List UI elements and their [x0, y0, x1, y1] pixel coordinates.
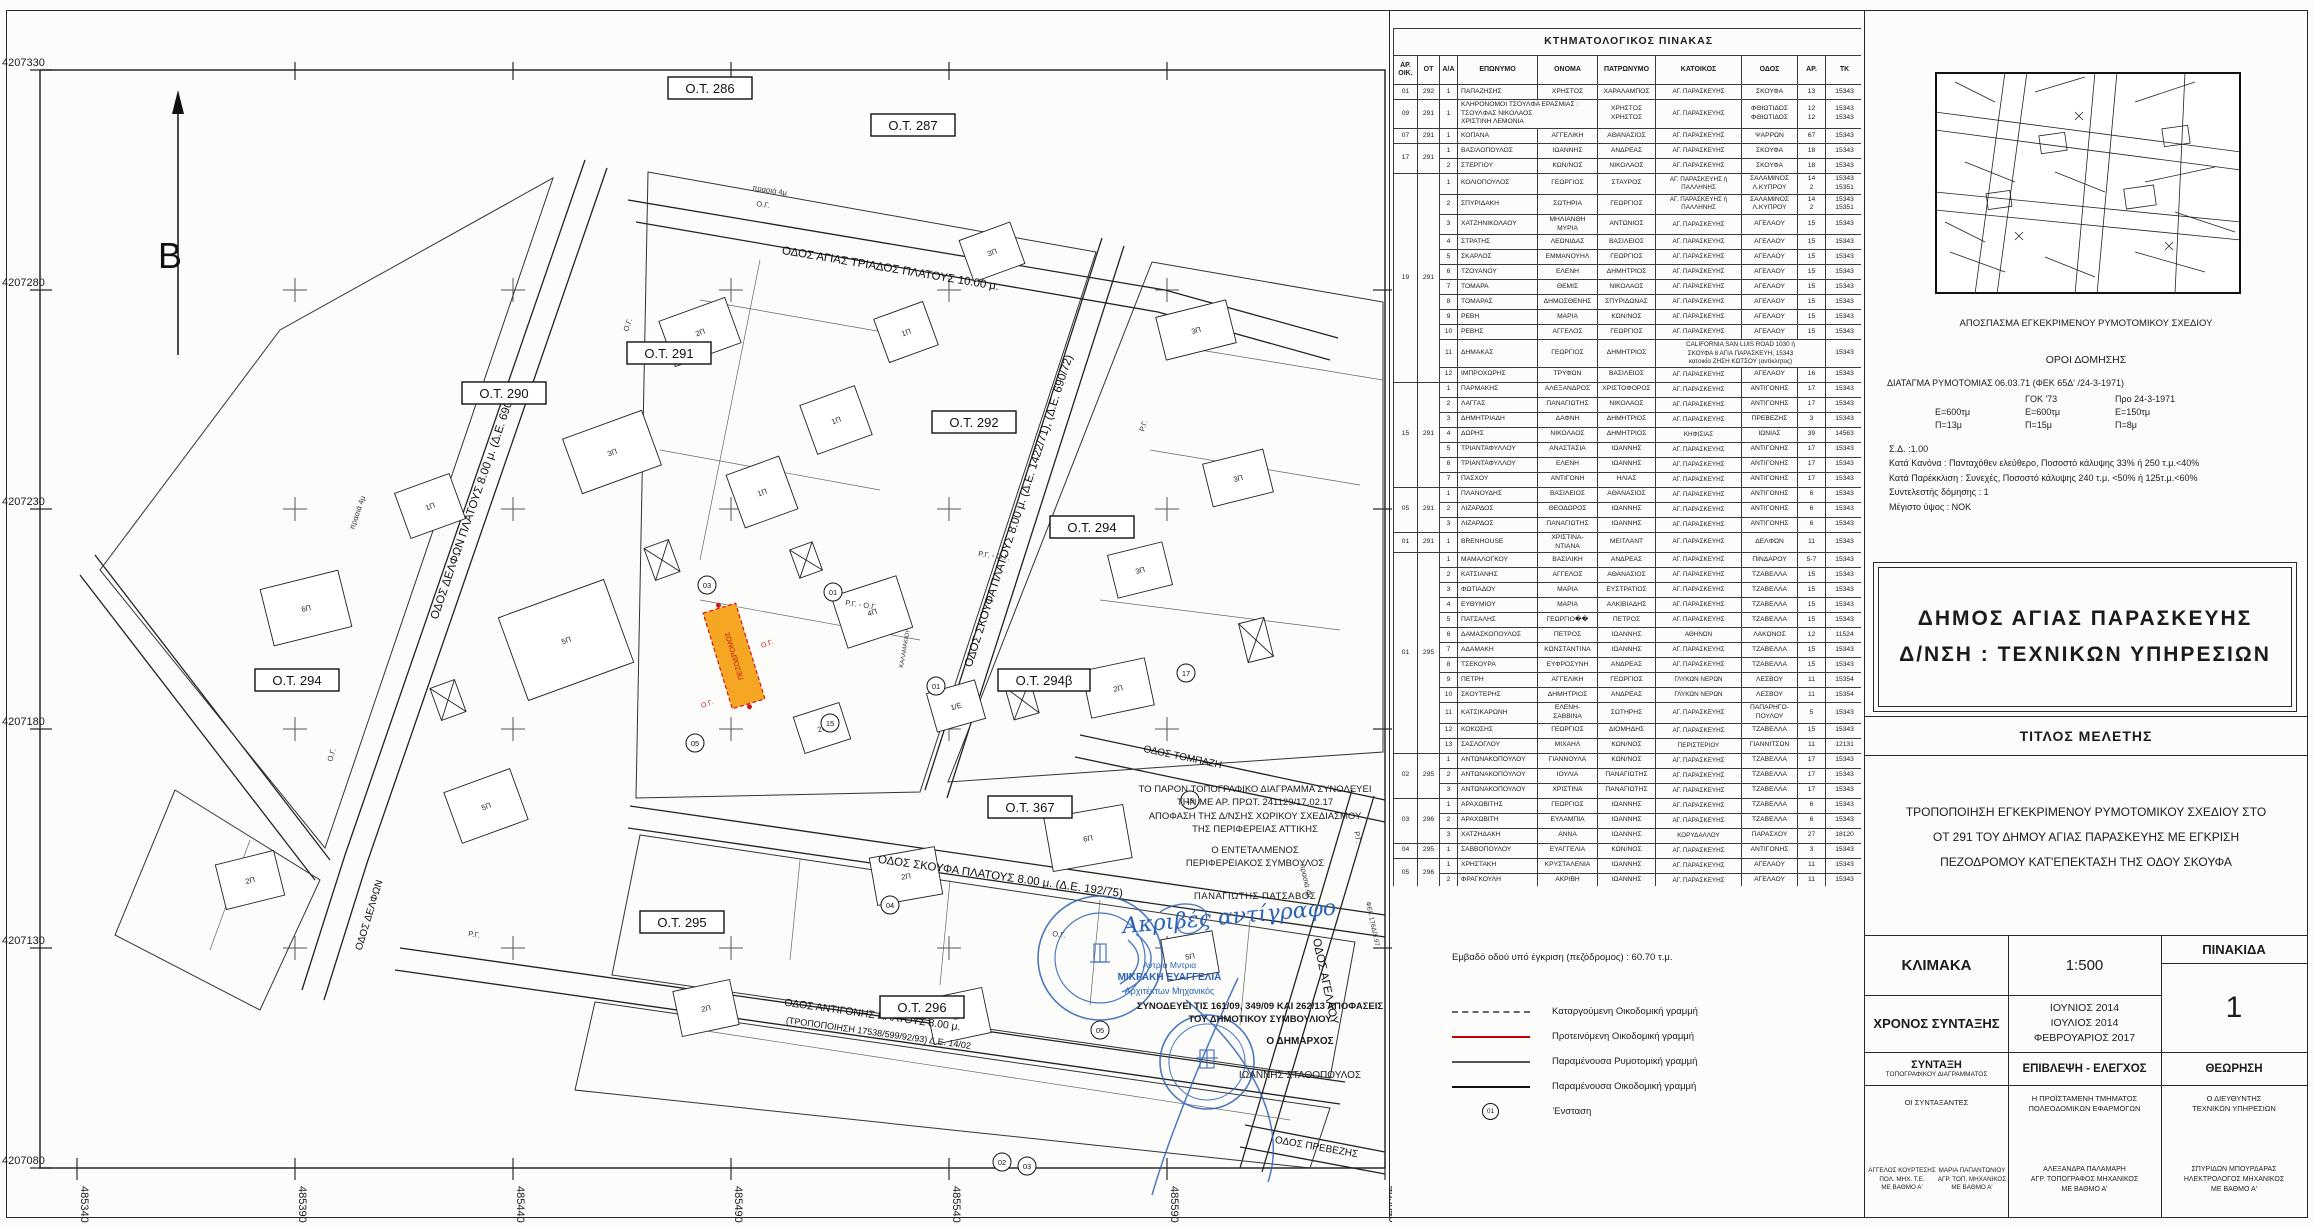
table-cell: ΑΓΕΛΑΟΥ	[1742, 265, 1798, 280]
table-cell: 291	[1418, 382, 1440, 487]
prasia-label: πρασιά 4μ	[752, 183, 788, 197]
table-cell: ΦΘΙΩΤΙΔΟΣ ΦΘΙΩΤΙΔΟΣ	[1742, 100, 1798, 129]
e-value: Ε=600τμ	[1935, 407, 2025, 417]
table-cell: 7	[1440, 643, 1458, 658]
table-row: 3ΧΑΤΖΗΝΙΚΟΛΑΟΥΜΗΛΙΑΝΘΗ ΜΥΡΙΑΑΝΤΩΝΙΟΣΑΓ. …	[1394, 214, 1862, 234]
table-row: 5ΠΑΤΣΑΛΗΣΓΕΩΡΓΙΟ��ΠΕΤΡΟΣΑΓ. ΠΑΡΑΣΚΕΥΗΣΤΖ…	[1394, 613, 1862, 628]
table-cell: ΑΓ. ΠΑΡΑΣΚΕΥΗΣ	[1656, 442, 1742, 457]
table-cell: ΑΓ. ΠΑΡΑΣΚΕΥΗΣ	[1656, 397, 1742, 412]
table-cell: ΑΓ. ΠΑΡΑΣΚΕΥΗΣ	[1656, 250, 1742, 265]
decree-line: ΔΙΑΤΑΓΜΑ ΡΥΜΟΤΟΜΙΑΣ 06.03.71 (ΦΕΚ 65Δ' /…	[1887, 378, 2297, 388]
cadastral-table: ΚΤΗΜΑΤΟΛΟΓΙΚΟΣ ΠΙΝΑΚΑΣ ΑΡ. ΟΙΚ. ΟΤ Α/Α Ε…	[1393, 28, 1861, 886]
table-cell: ΙΩΑΝΝΗΣ	[1598, 828, 1656, 843]
table-cell: ΛΙΖΑΡΔΟΣ	[1458, 502, 1538, 517]
table-row: 10ΡΕΒΗΣΑΓΓΕΛΟΣΓΕΩΡΓΙΟΣΑΓ. ΠΑΡΑΣΚΕΥΗΣΑΓΕΛ…	[1394, 325, 1862, 340]
table-cell: 4	[1440, 235, 1458, 250]
supervisor-role: Η ΠΡΟΪΣΤΑΜΕΝΗ ΤΜΗΜΑΤΟΣ ΠΟΛΕΟΔΟΜΙΚΩΝ ΕΦΑΡ…	[2008, 1090, 2161, 1118]
table-row: 012951ΜΑΜΑΛΟΓΚΟΥΒΑΣΙΛΙΚΗΑΝΔΡΕΑΣΑΓ. ΠΑΡΑΣ…	[1394, 553, 1862, 568]
table-cell: 6	[1798, 502, 1826, 517]
p-value: Π=15μ	[2025, 420, 2115, 430]
table-cell: ΑΓ. ΠΑΡΑΣΚΕΥΗΣ	[1656, 100, 1742, 129]
table-cell: 15	[1798, 310, 1826, 325]
table-cell: ΔΑΦΝΗ	[1538, 412, 1598, 427]
engineer-name-4: ΣΠΥΡΙΔΩΝ ΜΠΟΥΡΔΑΡΑΣ ΗΛΕΚΤΡΟΛΟΓΟΣ ΜΗΧΑΝΙΚ…	[2161, 1155, 2307, 1205]
col-header: ΟΤ	[1418, 56, 1440, 85]
table-cell: 5	[1440, 250, 1458, 265]
table-cell: ΓΛΥΚΩΝ ΝΕΡΩΝ	[1656, 688, 1742, 703]
table-cell: ΔΕΛΦΩΝ	[1742, 532, 1798, 552]
e-value: Ε=600τμ	[2025, 407, 2115, 417]
table-cell: 12	[1440, 367, 1458, 382]
table-cell: ΠΑΝΑΓΙΩΤΗΣ	[1538, 517, 1598, 532]
table-cell: 15343	[1826, 783, 1862, 798]
table-cell: ΑΛΚΙΒΙΑΔΗΣ	[1598, 598, 1656, 613]
municipality-box: ΔΗΜΟΣ ΑΓΙΑΣ ΠΑΡΑΣΚΕΥΗΣ Δ/ΝΣΗ : ΤΕΧΝΙΚΩΝ …	[1873, 562, 2297, 712]
objection-number: 05	[1096, 1026, 1104, 1035]
table-cell: 10	[1440, 688, 1458, 703]
compile-title: ΣΥΝΤΑΞΗ	[1911, 1059, 1962, 1071]
table-cell: ΣΠΥΡΙΔΩΝΑΣ	[1598, 295, 1656, 310]
table-cell: ΑΓ. ΠΑΡΑΣΚΕΥΗΣ	[1656, 85, 1742, 100]
table-cell: 1	[1440, 753, 1458, 768]
table-row: 12ΚΟΚΟΣΗΣΓΕΩΡΓΙΟΣΔΙΟΜΗΔΗΣΑΓ. ΠΑΡΑΣΚΕΥΗΣΤ…	[1394, 723, 1862, 738]
exception-line: Κατά Παρέκκλιση : Συνεχές, Ποσοστό κάλυψ…	[1889, 471, 2299, 485]
table-cell: 11	[1798, 873, 1826, 886]
table-cell: 15	[1798, 598, 1826, 613]
table-cell: 27	[1798, 828, 1826, 843]
table-cell: ΚΩΝ/ΝΟΣ	[1598, 843, 1656, 858]
table-cell: 10	[1440, 325, 1458, 340]
table-cell: ΑΓΕΛΑΟΥ	[1742, 214, 1798, 234]
table-row: 9ΠΕΤΡΗΑΓΓΕΛΙΚΗΓΕΩΡΓΙΟΣΓΛΥΚΩΝ ΝΕΡΩΝΛΕΣΒΟΥ…	[1394, 673, 1862, 688]
table-cell: 2	[1440, 502, 1458, 517]
table-cell: 15343	[1826, 753, 1862, 768]
table-cell: ΤΟΜΑΡΑ	[1458, 280, 1538, 295]
x-tick-label: 485390	[296, 1186, 308, 1223]
table-cell: ΑΓ. ΠΑΡΑΣΚΕΥΗΣ	[1656, 517, 1742, 532]
table-cell: ΒΑΣΙΛΕΙΟΣ	[1598, 235, 1656, 250]
table-cell: ΛΕΩΝΙΔΑΣ	[1538, 235, 1598, 250]
objection-number: 01	[932, 682, 940, 691]
col-header: ΠΑΤΡΩΝΥΜΟ	[1598, 56, 1656, 85]
table-cell: 6	[1440, 628, 1458, 643]
table-cell: 1	[1440, 129, 1458, 144]
table-cell: ΓΕΩΡΓΙΟΣ	[1538, 723, 1598, 738]
table-cell: CALIFORNIA SAN LUIS ROAD 1030 ή ΣΚΟΥΦΑ 8…	[1656, 340, 1826, 368]
table-cell: 01	[1394, 532, 1418, 552]
table-cell: 8	[1440, 658, 1458, 673]
table-row: 3ΑΝΤΩΝΑΚΟΠΟΥΛΟΥΧΡΙΣΤΙΝΑΠΑΝΑΓΙΩΤΗΣΑΓ. ΠΑΡ…	[1394, 783, 1862, 798]
table-cell: ΣΠΥΡΙΔΑΚΗ	[1458, 194, 1538, 214]
north-label: Β	[158, 235, 182, 276]
table-cell: ΜΑΡΙΑ	[1538, 598, 1598, 613]
table-cell: ΓΙΑΝΝΟΥΛΑ	[1538, 753, 1598, 768]
table-row: 4ΔΩΡΗΣΝΙΚΟΛΑΟΣΔΗΜΗΤΡΙΟΣΚΗΦΙΣΙΑΣΙΩΝΙΑΣ391…	[1394, 427, 1862, 442]
table-cell: ΚΩΝΣΤΑΝΤΙΝΑ	[1538, 643, 1598, 658]
table-cell: 15343	[1826, 768, 1862, 783]
table-cell: 8	[1440, 295, 1458, 310]
y-tick-label: 4207230	[2, 496, 45, 508]
terms-blank	[1935, 394, 2025, 404]
table-cell: 09	[1394, 100, 1418, 129]
architect-hand-note: Αντρια Μντρια	[1082, 960, 1257, 970]
table-cell: 17	[1798, 472, 1826, 487]
table-cell: ΣΤΕΡΓΙΟΥ	[1458, 159, 1538, 174]
table-cell: ΣΑΛΑΜΙΝΟΣ Λ.ΚΥΠΡΟΥ	[1742, 174, 1798, 194]
table-cell: 15	[1798, 658, 1826, 673]
table-cell: 15343	[1826, 325, 1862, 340]
table-cell: 295	[1418, 843, 1440, 858]
table-row: 3ΔΗΜΗΤΡΙΑΔΗΔΑΦΝΗΔΗΜΗΤΡΙΟΣΑΓ. ΠΑΡΑΣΚΕΥΗΣΠ…	[1394, 412, 1862, 427]
table-cell: ΜΑΡΙΑ	[1538, 583, 1598, 598]
table-cell: 2	[1440, 397, 1458, 412]
table-cell: 15343	[1826, 250, 1862, 265]
objection-number: 04	[886, 901, 894, 910]
table-cell: ΡΕΒΗΣ	[1458, 325, 1538, 340]
mayor-title: Ο ΔΗΜΑΡΧΟΣ	[1215, 1036, 1385, 1047]
table-cell: ΙΩΑΝΝΗΣ	[1598, 798, 1656, 813]
table-cell: 1	[1440, 858, 1458, 873]
table-cell: ΑΓΕΛΑΟΥ	[1742, 250, 1798, 265]
table-cell: 296	[1418, 858, 1440, 886]
table-cell: ΑΓ. ΠΑΡΑΣΚΕΥΗΣ	[1656, 613, 1742, 628]
table-cell: 15	[1394, 382, 1418, 487]
table-cell: 15343	[1826, 517, 1862, 532]
table-cell: ΠΑΡΑΣΧΟΥ	[1742, 828, 1798, 843]
table-cell: ΓΕΩΡΓΙΟ��	[1538, 613, 1598, 628]
table-cell: 1	[1440, 487, 1458, 502]
table-cell: ΧΡΙΣΤΙΝΑ	[1538, 783, 1598, 798]
table-cell: 15343	[1826, 613, 1862, 628]
table-cell: ΠΑΠΑΡΗΓΟ- ΠΟΥΛΟΥ	[1742, 703, 1798, 723]
table-cell: 3	[1440, 583, 1458, 598]
table-cell: ΧΡΗΣΤΑΚΗ	[1458, 858, 1538, 873]
table-cell: 17	[1798, 457, 1826, 472]
legend-item: Προτεινόμενη Οικοδομική γραμμή	[1452, 1024, 1852, 1049]
date-label: ΧΡΟΝΟΣ ΣΥΝΤΑΞΗΣ	[1865, 995, 2008, 1052]
table-cell: 15343	[1826, 798, 1862, 813]
table-cell: ΓΕΩΡΓΙΟΣ	[1538, 798, 1598, 813]
table-row: 022951ΑΝΤΩΝΑΚΟΠΟΥΛΟΥΓΙΑΝΝΟΥΛΑΚΩΝ/ΝΟΣΑΓ. …	[1394, 753, 1862, 768]
table-cell: ΑΓΓΕΛΟΣ	[1538, 568, 1598, 583]
table-cell: 67	[1798, 129, 1826, 144]
table-cell: ΣΑΛΑΜΙΝΟΣ Λ.ΚΥΠΡΟΥ	[1742, 194, 1798, 214]
table-cell: 12 12	[1798, 100, 1826, 129]
table-cell: ΑΓ. ΠΑΡΑΣΚΕΥΗΣ	[1656, 367, 1742, 382]
table-cell: 3	[1440, 214, 1458, 234]
col-header: ΟΝΟΜΑ	[1538, 56, 1598, 85]
table-cell: ΤΡΙΑΝΤΑΦΥΛΛΟΥ	[1458, 457, 1538, 472]
table-cell: ΑΓ. ΠΑΡΑΣΚΕΥΗΣ	[1656, 583, 1742, 598]
table-cell: ΑΓ. ΠΑΡΑΣΚΕΥΗΣ	[1656, 310, 1742, 325]
objection-number: 02	[998, 1158, 1006, 1167]
table-cell: ΤΟΜΑΡΑΣ	[1458, 295, 1538, 310]
table-cell: 3	[1440, 517, 1458, 532]
dates: ΙΟΥΝΙΟΣ 2014 ΙΟΥΛΙΟΣ 2014 ΦΕΒΡΟΥΑΡΙΟΣ 20…	[2008, 995, 2161, 1052]
table-cell: ΑΝΔΡΕΑΣ	[1598, 658, 1656, 673]
engineer-name-1: ΑΓΓΕΛΟΣ ΚΟΥΡΤΕΣΗΣ ΠΟΛ. ΜΗΧ. Τ.Ε. ΜΕ ΒΑΘΜ…	[1867, 1155, 1937, 1205]
table-cell: ΑΝΤΙΓΟΝΗΣ	[1742, 397, 1798, 412]
table-row: 11ΔΗΜΑΚΑΣΓΕΩΡΓΙΟΣΔΗΜΗΤΡΙΟΣCALIFORNIA SAN…	[1394, 340, 1862, 368]
table-cell: ΤΖΑΒΕΛΛΑ	[1742, 583, 1798, 598]
table-cell: 1	[1440, 798, 1458, 813]
table-cell: ΑΓ. ΠΑΡΑΣΚΕΥΗΣ	[1656, 753, 1742, 768]
table-cell: ΤΖΑΒΕΛΛΑ	[1742, 598, 1798, 613]
p-value: Π=8μ	[2115, 420, 2225, 430]
table-cell: 17	[1798, 442, 1826, 457]
table-cell: ΔΗΜΗΤΡΙΟΣ	[1598, 427, 1656, 442]
table-cell: ΕΛΕΝΗ	[1538, 457, 1598, 472]
y-tick-label: 4207180	[2, 716, 45, 728]
table-cell: ΑΝΔΡΕΑΣ	[1598, 688, 1656, 703]
table-row: 4ΣΤΡΑΤΗΣΛΕΩΝΙΔΑΣΒΑΣΙΛΕΙΟΣΑΓ. ΠΑΡΑΣΚΕΥΗΣΑ…	[1394, 235, 1862, 250]
table-cell: ΠΕΡΙΣΤΕΡΙΟΥ	[1656, 738, 1742, 753]
table-row: 2ΛΙΖΑΡΔΟΣΘΕΟΔΩΡΟΣΙΩΑΝΝΗΣΑΓ. ΠΑΡΑΣΚΕΥΗΣΑΝ…	[1394, 502, 1862, 517]
table-cell: ΑΡΑΧΩΒΙΤΗΣ	[1458, 798, 1538, 813]
table-cell: ΣΚΟΥΦΑ	[1742, 144, 1798, 159]
table-row: 192911ΚΟΛΙΟΠΟΥΛΟΣΓΕΩΡΓΙΟΣΣΤΑΥΡΟΣΑΓ. ΠΑΡΑ…	[1394, 174, 1862, 194]
table-cell: ΧΡΙΣΤΙΝΑ-ΝΤΙΑΝΑ	[1538, 532, 1598, 552]
table-cell: ΛΑΓΓΑΣ	[1458, 397, 1538, 412]
table-cell: ΔΙΟΜΗΔΗΣ	[1598, 723, 1656, 738]
coefficient-line: Συντελεστής δόμησης : 1	[1889, 485, 2299, 499]
table-cell: ΑΓ. ΠΑΡΑΣΚΕΥΗΣ	[1656, 457, 1742, 472]
table-cell: 15	[1798, 723, 1826, 738]
table-row: 052911ΠΛΑΝΟΥΔΗΣΒΑΣΙΛΕΙΟΣΑΘΑΝΑΣΙΟΣΑΓ. ΠΑΡ…	[1394, 487, 1862, 502]
table-cell: 01	[1394, 85, 1418, 100]
council-decisions-note: ΣΥΝΟΔΕΥΕΙ ΤΙΣ 161/09, 349/09 ΚΑΙ 262/13 …	[1110, 1000, 1410, 1027]
table-cell: 291	[1418, 174, 1440, 383]
og-label-red: Ο.Γ.	[700, 699, 714, 710]
table-cell: ΙΩΑΝΝΗΣ	[1598, 643, 1656, 658]
table-cell: ΜΕΙΤΛΑΝΤ	[1598, 532, 1656, 552]
table-cell: ΑΓ. ΠΑΡΑΣΚΕΥΗΣ	[1656, 159, 1742, 174]
table-row: 2ΑΡΑΧΩΒΙΤΗΕΥΛΑΜΠΙΑΙΩΑΝΝΗΣΑΓ. ΠΑΡΑΣΚΕΥΗΣΤ…	[1394, 813, 1862, 828]
block-label: Ο.Τ. 367	[1005, 800, 1054, 815]
table-cell: 15343	[1826, 532, 1862, 552]
table-cell: ΒΑΣΙΛΙΚΗ	[1538, 553, 1598, 568]
table-cell: ΑΝΤΩΝΑΚΟΠΟΥΛΟΥ	[1458, 783, 1538, 798]
table-cell: ΛΕΣΒΟΥ	[1742, 688, 1798, 703]
table-cell: ΑΝΤΙΓΟΝΗΣ	[1742, 487, 1798, 502]
table-cell: ΑΝΤΙΓΟΝΗΣ	[1742, 442, 1798, 457]
table-cell: ΣΤΡΑΤΗΣ	[1458, 235, 1538, 250]
table-cell: 15343	[1826, 340, 1862, 368]
table-cell: 15343	[1826, 553, 1862, 568]
og-label-red: Ο.Γ.	[760, 639, 774, 650]
table-cell: ΓΙΑΝΝΙΤΣΩΝ	[1742, 738, 1798, 753]
table-cell: 15343	[1826, 159, 1862, 174]
table-cell: ΚΑΤΣΙΚΑΡΩΝΗ	[1458, 703, 1538, 723]
table-header-row: ΑΡ. ΟΙΚ. ΟΤ Α/Α ΕΠΩΝΥΜΟ ΟΝΟΜΑ ΠΑΤΡΩΝΥΜΟ …	[1394, 56, 1862, 85]
col-header: Α/Α	[1440, 56, 1458, 85]
table-cell: 11	[1798, 858, 1826, 873]
y-tick-label: 4207080	[2, 1155, 45, 1167]
table-title: ΚΤΗΜΑΤΟΛΟΓΙΚΟΣ ΠΙΝΑΚΑΣ	[1394, 29, 1862, 56]
table-cell: ΚΟΚΟΣΗΣ	[1458, 723, 1538, 738]
table-row: 012911BRENHOUSEΧΡΙΣΤΙΝΑ-ΝΤΙΑΝΑΜΕΙΤΛΑΝΤΑΓ…	[1394, 532, 1862, 552]
table-cell: ΑΓ. ΠΑΡΑΣΚΕΥΗΣ	[1656, 412, 1742, 427]
table-cell: ΘΕΟΔΩΡΟΣ	[1538, 502, 1598, 517]
table-row: 2ΛΑΓΓΑΣΠΑΝΑΓΙΩΤΗΣΝΙΚΟΛΑΟΣΑΓ. ΠΑΡΑΣΚΕΥΗΣΑ…	[1394, 397, 1862, 412]
terms-grid: ΓΟΚ '73 Προ 24-3-1971 Ε=600τμ Ε=600τμ Ε=…	[1935, 394, 2235, 430]
table-cell: 15343	[1826, 658, 1862, 673]
table-cell: ΠΑΠΑΖΗΣΗΣ	[1458, 85, 1538, 100]
accompanying-decision-note: ΤΟ ΠΑΡΟΝ ΤΟΠΟΓΡΑΦΙΚΟ ΔΙΑΓΡΑΜΜΑ ΣΥΝΟΔΕΥΕΙ…	[1105, 783, 1405, 836]
table-cell: 7	[1440, 472, 1458, 487]
table-cell: ΕΥΑΓΓΕΛΙΑ	[1538, 843, 1598, 858]
table-cell: 3	[1798, 412, 1826, 427]
table-cell: ΝΙΚΟΛΑΟΣ	[1538, 427, 1598, 442]
table-cell: ΑΝΤΙΓΟΝΗΣ	[1742, 517, 1798, 532]
table-cell: 07	[1394, 129, 1418, 144]
table-cell: ΒΑΣΙΛΕΙΟΣ	[1598, 367, 1656, 382]
table-cell: 15343	[1826, 397, 1862, 412]
table-row: 032961ΑΡΑΧΩΒΙΤΗΣΓΕΩΡΓΙΟΣΙΩΑΝΝΗΣΑΓ. ΠΑΡΑΣ…	[1394, 798, 1862, 813]
table-cell: BRENHOUSE	[1458, 532, 1538, 552]
table-cell: ΝΙΚΟΛΑΟΣ	[1598, 280, 1656, 295]
table-cell: ΚΟΡΥΔΑΛΛΟΥ	[1656, 828, 1742, 843]
table-cell: 15	[1798, 250, 1826, 265]
table-cell: ΛΙΖΑΡΔΟΣ	[1458, 517, 1538, 532]
table-cell: 15343	[1826, 568, 1862, 583]
legend-label: Ένσταση	[1553, 1106, 1591, 1117]
cadastral-table-container: ΚΤΗΜΑΤΟΛΟΓΙΚΟΣ ΠΙΝΑΚΑΣ ΑΡ. ΟΙΚ. ΟΤ Α/Α Ε…	[1393, 28, 1861, 886]
table-cell: 6	[1440, 457, 1458, 472]
table-cell: ΙΩΑΝΝΗΣ	[1598, 813, 1656, 828]
table-row: 7ΠΑΣΧΟΥΑΝΤΙΓΟΝΗΗΛΙΑΣΑΓ. ΠΑΡΑΣΚΕΥΗΣΑΝΤΙΓΟ…	[1394, 472, 1862, 487]
table-cell: ΕΥΣΤΡΑΤΙΟΣ	[1598, 583, 1656, 598]
table-cell: ΧΡΗΣΤΟΣ	[1538, 85, 1598, 100]
table-cell: 291	[1418, 487, 1440, 532]
table-cell: ΤΖΑΒΕΛΛΑ	[1742, 568, 1798, 583]
table-cell: 39	[1798, 427, 1826, 442]
table-cell: ΑΝΤΩΝΙΟΣ	[1598, 214, 1656, 234]
table-cell: ΓΕΩΡΓΙΟΣ	[1598, 325, 1656, 340]
table-cell: ΙΩΑΝΝΗΣ	[1598, 858, 1656, 873]
table-row: 6ΔΑΜΑΣΚΟΠΟΥΛΟΣΠΕΤΡΟΣΙΩΑΝΝΗΣΑΘΗΝΩΝΛΑΚΩΝΟΣ…	[1394, 628, 1862, 643]
table-cell: ΣΩΤΗΡΗΣ	[1598, 703, 1656, 723]
table-row: 3ΧΑΤΖΗΔΑΚΗΑΝΝΑΙΩΑΝΝΗΣΚΟΡΥΔΑΛΛΟΥΠΑΡΑΣΧΟΥ2…	[1394, 828, 1862, 843]
table-cell: ΑΝΝΑ	[1538, 828, 1598, 843]
table-cell: 1	[1440, 100, 1458, 129]
table-cell: ΑΚΡΙΒΗ	[1538, 873, 1598, 886]
table-cell: ΑΓ. ΠΑΡΑΣΚΕΥΗΣ	[1656, 568, 1742, 583]
table-cell: ΚΟΠΑΝΑ	[1458, 129, 1538, 144]
x-tick-label: 485490	[732, 1186, 744, 1223]
table-cell: 6	[1798, 487, 1826, 502]
table-cell: 17	[1798, 753, 1826, 768]
table-cell: ΔΗΜΗΤΡΙΟΣ	[1538, 688, 1598, 703]
y-tick-label: 4207280	[2, 277, 45, 289]
table-cell: ΣΚΟΥΤΕΡΗΣ	[1458, 688, 1538, 703]
table-cell: ΣΤΑΥΡΟΣ	[1598, 174, 1656, 194]
table-cell: ΑΓ. ΠΑΡΑΣΚΕΥΗΣ	[1656, 783, 1742, 798]
gray-line-swatch	[1452, 1061, 1530, 1063]
table-cell: ΑΓΕΛΑΟΥ	[1742, 280, 1798, 295]
table-cell: 15	[1798, 613, 1826, 628]
block-label: Ο.Τ. 286	[685, 81, 734, 96]
table-cell: 2	[1440, 813, 1458, 828]
table-row: 2ΦΡΑΓΚΟΥΛΗΑΚΡΙΒΗΙΩΑΝΝΗΣΑΓ. ΠΑΡΑΣΚΕΥΗΣΑΓΕ…	[1394, 873, 1862, 886]
table-cell: 3	[1798, 843, 1826, 858]
table-cell: ΠΡΕΒΕΖΗΣ	[1742, 412, 1798, 427]
rule-line: Κατά Κανόνα : Πανταχόθεν ελεύθερο, Ποσοσ…	[1889, 456, 2299, 470]
table-cell: ΑΓ. ΠΑΡΑΣΚΕΥΗΣ	[1656, 487, 1742, 502]
table-row: 2ΣΤΕΡΓΙΟΥΚΩΝ/ΝΟΣΝΙΚΟΛΑΟΣΑΓ. ΠΑΡΑΣΚΕΥΗΣΣΚ…	[1394, 159, 1862, 174]
table-cell: 11	[1798, 688, 1826, 703]
table-cell: ΧΑΡΑΛΑΜΠΟΣ	[1598, 85, 1656, 100]
table-cell: 13	[1440, 738, 1458, 753]
table-cell: 15343	[1826, 85, 1862, 100]
table-cell: 12	[1798, 628, 1826, 643]
table-cell: 15	[1798, 325, 1826, 340]
table-row: 152911ΠΑΡΜΑΚΗΣΑΛΕΞΑΝΔΡΟΣΧΡΙΣΤΟΦΟΡΟΣΑΓ. Π…	[1394, 382, 1862, 397]
table-cell: ΤΖΑΒΕΛΛΑ	[1742, 783, 1798, 798]
table-cell: 5	[1440, 613, 1458, 628]
objection-number: 03	[1023, 1162, 1031, 1171]
table-cell: ΔΗΜΑΚΑΣ	[1458, 340, 1538, 368]
table-row: 11ΚΑΤΣΙΚΑΡΩΝΗΕΛΕΝΗ- ΣΑΒΒΙΝΑΣΩΤΗΡΗΣΑΓ. ΠΑ…	[1394, 703, 1862, 723]
table-cell: ΠΕΤΡΟΣ	[1598, 613, 1656, 628]
table-cell: ΔΑΜΑΣΚΟΠΟΥΛΟΣ	[1458, 628, 1538, 643]
table-cell: 1	[1440, 553, 1458, 568]
table-cell: ΕΛΕΝΗ	[1538, 265, 1598, 280]
municipality-box-inner: ΔΗΜΟΣ ΑΓΙΑΣ ΠΑΡΑΣΚΕΥΗΣ Δ/ΝΣΗ : ΤΕΧΝΙΚΩΝ …	[1878, 567, 2292, 707]
table-row: 4ΕΥΘΥΜΙΟΥΜΑΡΙΑΑΛΚΙΒΙΑΔΗΣΑΓ. ΠΑΡΑΣΚΕΥΗΣΤΖ…	[1394, 598, 1862, 613]
table-row: 8ΤΣΕΚΟΥΡΑΕΥΦΡΟΣΥΝΗΑΝΔΡΕΑΣΑΓ. ΠΑΡΑΣΚΕΥΗΣΤ…	[1394, 658, 1862, 673]
table-cell: ΑΓ. ΠΑΡΑΣΚΕΥΗΣ	[1656, 144, 1742, 159]
legend-item: Καταργούμενη Οικοδομική γραμμή	[1452, 999, 1852, 1024]
y-tick-labels: 4207330 4207280 4207230 4207180 4207130 …	[2, 57, 45, 1167]
legend: Εμβαδό οδού υπό έγκριση (πεζόδρομος) : 6…	[1452, 952, 1852, 1124]
table-cell: ΑΓΕΛΑΟΥ	[1742, 873, 1798, 886]
table-cell: ΤΖΑΒΕΛΛΑ	[1742, 768, 1798, 783]
table-cell: ΓΕΩΡΓΙΟΣ	[1538, 340, 1598, 368]
table-cell: 4	[1440, 598, 1458, 613]
table-cell: ΙΩΑΝΝΗΣ	[1538, 144, 1598, 159]
plate-label: ΠΙΝΑΚΙΔΑ	[2161, 935, 2307, 963]
table-cell: 11	[1440, 340, 1458, 368]
p-value: Π=13μ	[1935, 420, 2025, 430]
table-cell: ΑΓ. ΠΑΡΑΣΚΕΥΗΣ	[1656, 382, 1742, 397]
street-label: ΟΔΟΣ ΣΚΟΥΦΑ ΠΛΑΤΟΥΣ 8.00 μ. (Δ.Ε. 1422/7…	[963, 353, 1076, 668]
table-cell: ΤΖΑΒΕΛΛΑ	[1742, 613, 1798, 628]
approval-header: ΘΕΩΡΗΣΗ	[2161, 1052, 2307, 1085]
table-cell: 17	[1394, 144, 1418, 174]
table-cell: ΜΗΛΙΑΝΘΗ ΜΥΡΙΑ	[1538, 214, 1598, 234]
block-label: Ο.Τ. 294	[272, 673, 321, 688]
table-cell: 2	[1440, 768, 1458, 783]
table-cell: 12131	[1826, 738, 1862, 753]
y-tick-label: 4207330	[2, 57, 45, 69]
table-cell: 15343	[1826, 598, 1862, 613]
prasia-label: πρασιά 4μ	[347, 495, 367, 531]
table-cell: 11524	[1826, 628, 1862, 643]
table-cell: 15	[1798, 265, 1826, 280]
compile-header: ΣΥΝΤΑΞΗ ΤΟΠΟΓΡΑΦΙΚΟΥ ΔΙΑΓΡΑΜΜΑΤΟΣ	[1865, 1052, 2008, 1085]
block-label: Ο.Τ. 296	[897, 1000, 946, 1015]
table-cell: 15343	[1826, 858, 1862, 873]
compilers-role: ΟΙ ΣΥΝΤΑΞΑΝΤΕΣ	[1865, 1090, 2008, 1114]
table-cell: 15343	[1826, 310, 1862, 325]
table-cell: ΚΛΗΡΟΝΟΜΟΙ ΤΣΟΥΛΦΑ ΕΡΑΣΜΙΑΣ : ΤΣΟΥΛΦΑΣ Ν…	[1458, 100, 1598, 129]
table-cell: ΘΕΜΙΣ	[1538, 280, 1598, 295]
table-cell: ΦΩΤΙΑΔΟΥ	[1458, 583, 1538, 598]
table-cell: ΡΕΒΗ	[1458, 310, 1538, 325]
drawing-sheet: 4207330 4207280 4207230 4207180 4207130 …	[0, 0, 2314, 1226]
table-cell: ΤΖΑΒΕΛΛΑ	[1742, 723, 1798, 738]
